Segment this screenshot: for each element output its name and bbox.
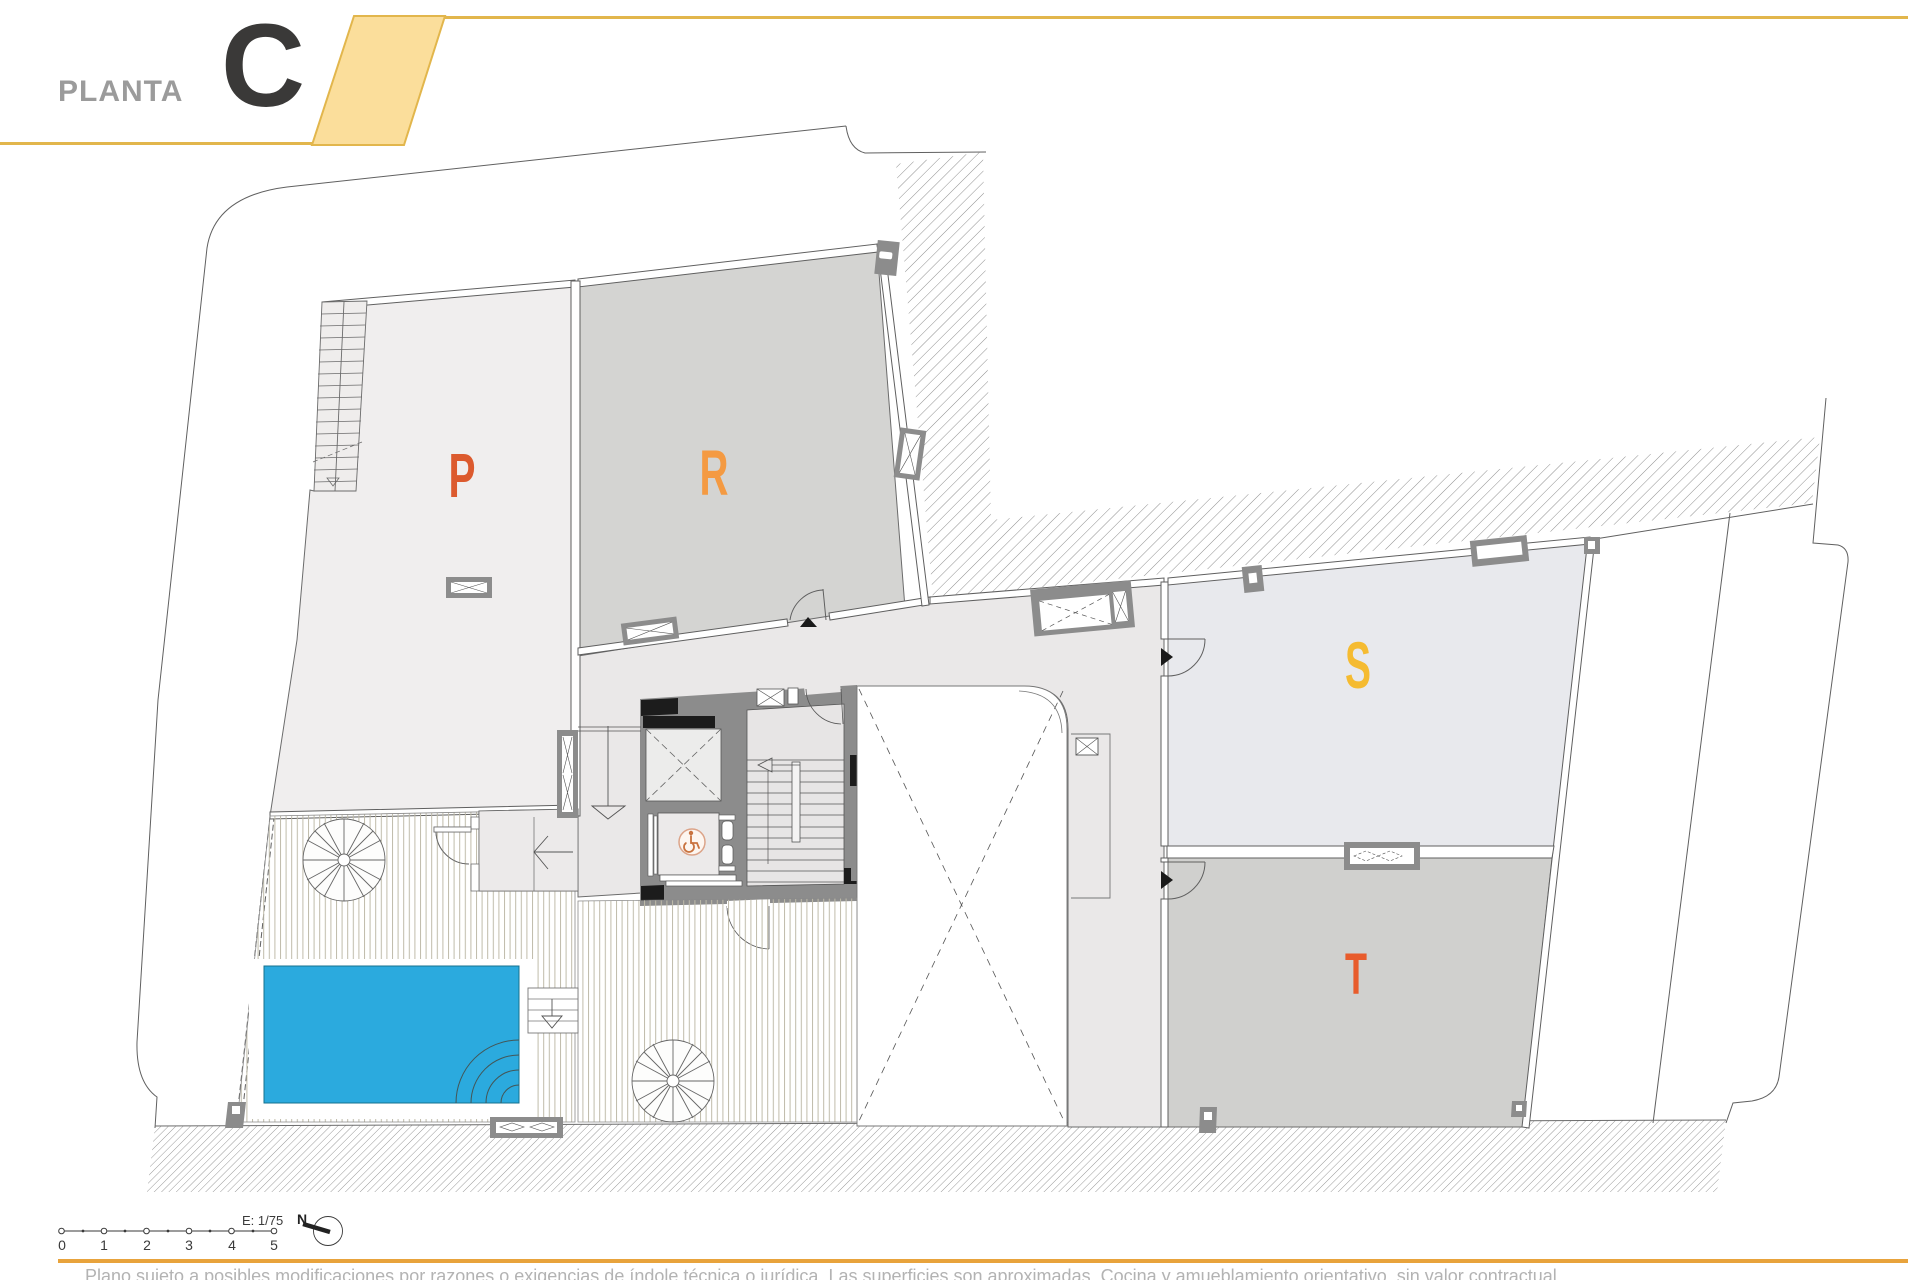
svg-text:Plano sujeto a posibles modifi: Plano sujeto a posibles modificaciones p…	[85, 1266, 1562, 1280]
svg-text:5: 5	[270, 1237, 278, 1253]
svg-text:1: 1	[100, 1237, 108, 1253]
svg-text:4: 4	[228, 1237, 236, 1253]
svg-text:3: 3	[185, 1237, 193, 1253]
svg-text:E: 1/75: E: 1/75	[242, 1213, 283, 1228]
svg-text:2: 2	[143, 1237, 151, 1253]
svg-text:P: P	[449, 442, 476, 511]
svg-text:T: T	[1345, 942, 1367, 1007]
svg-text:S: S	[1345, 628, 1371, 702]
svg-text:0: 0	[58, 1237, 66, 1253]
svg-text:R: R	[700, 437, 729, 509]
svg-text:C: C	[221, 0, 305, 132]
svg-text:PLANTA: PLANTA	[58, 75, 183, 108]
